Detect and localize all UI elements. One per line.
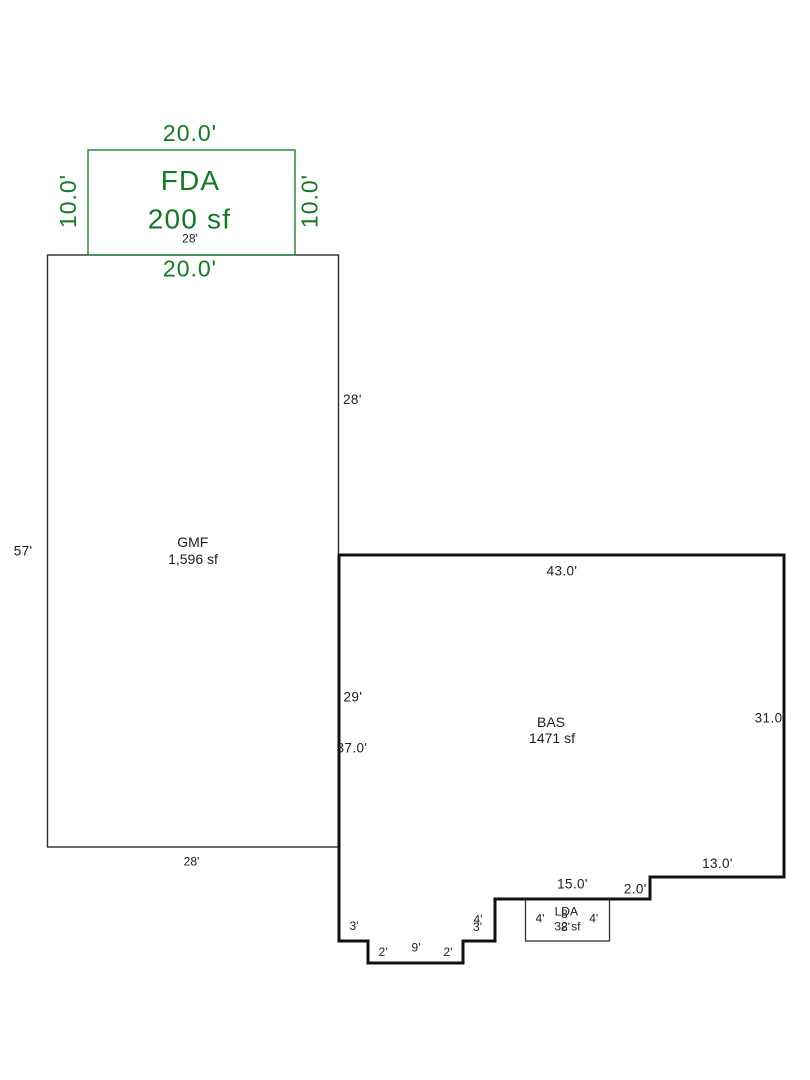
svg-text:20.0': 20.0' — [163, 256, 217, 282]
svg-text:31.0': 31.0' — [755, 711, 786, 726]
svg-text:FDA: FDA — [161, 165, 221, 196]
svg-text:20.0': 20.0' — [163, 120, 217, 146]
svg-text:8': 8' — [561, 907, 570, 921]
svg-text:10.0': 10.0' — [55, 174, 81, 228]
svg-text:1471 sf: 1471 sf — [529, 730, 575, 746]
svg-text:1,596 sf: 1,596 sf — [168, 551, 218, 567]
svg-text:9': 9' — [412, 941, 421, 955]
svg-text:3': 3' — [473, 920, 482, 934]
svg-text:2.0': 2.0' — [624, 882, 647, 897]
svg-text:29': 29' — [344, 690, 363, 705]
svg-text:3': 3' — [350, 919, 359, 933]
svg-text:200 sf: 200 sf — [148, 204, 231, 235]
svg-text:28': 28' — [182, 232, 198, 246]
svg-text:37.0': 37.0' — [337, 741, 368, 756]
svg-text:10.0': 10.0' — [297, 174, 323, 228]
svg-text:57': 57' — [14, 544, 33, 559]
svg-text:13.0': 13.0' — [702, 856, 733, 871]
svg-text:28': 28' — [343, 392, 362, 407]
svg-text:43.0': 43.0' — [547, 564, 578, 579]
svg-text:2': 2' — [379, 945, 388, 959]
svg-text:15.0': 15.0' — [557, 877, 588, 892]
svg-text:4': 4' — [536, 912, 545, 926]
svg-text:28': 28' — [184, 855, 200, 869]
svg-text:4': 4' — [589, 912, 598, 926]
svg-text:GMF: GMF — [177, 534, 208, 550]
svg-text:2': 2' — [444, 945, 453, 959]
svg-text:8': 8' — [561, 920, 570, 934]
svg-text:BAS: BAS — [537, 714, 565, 730]
